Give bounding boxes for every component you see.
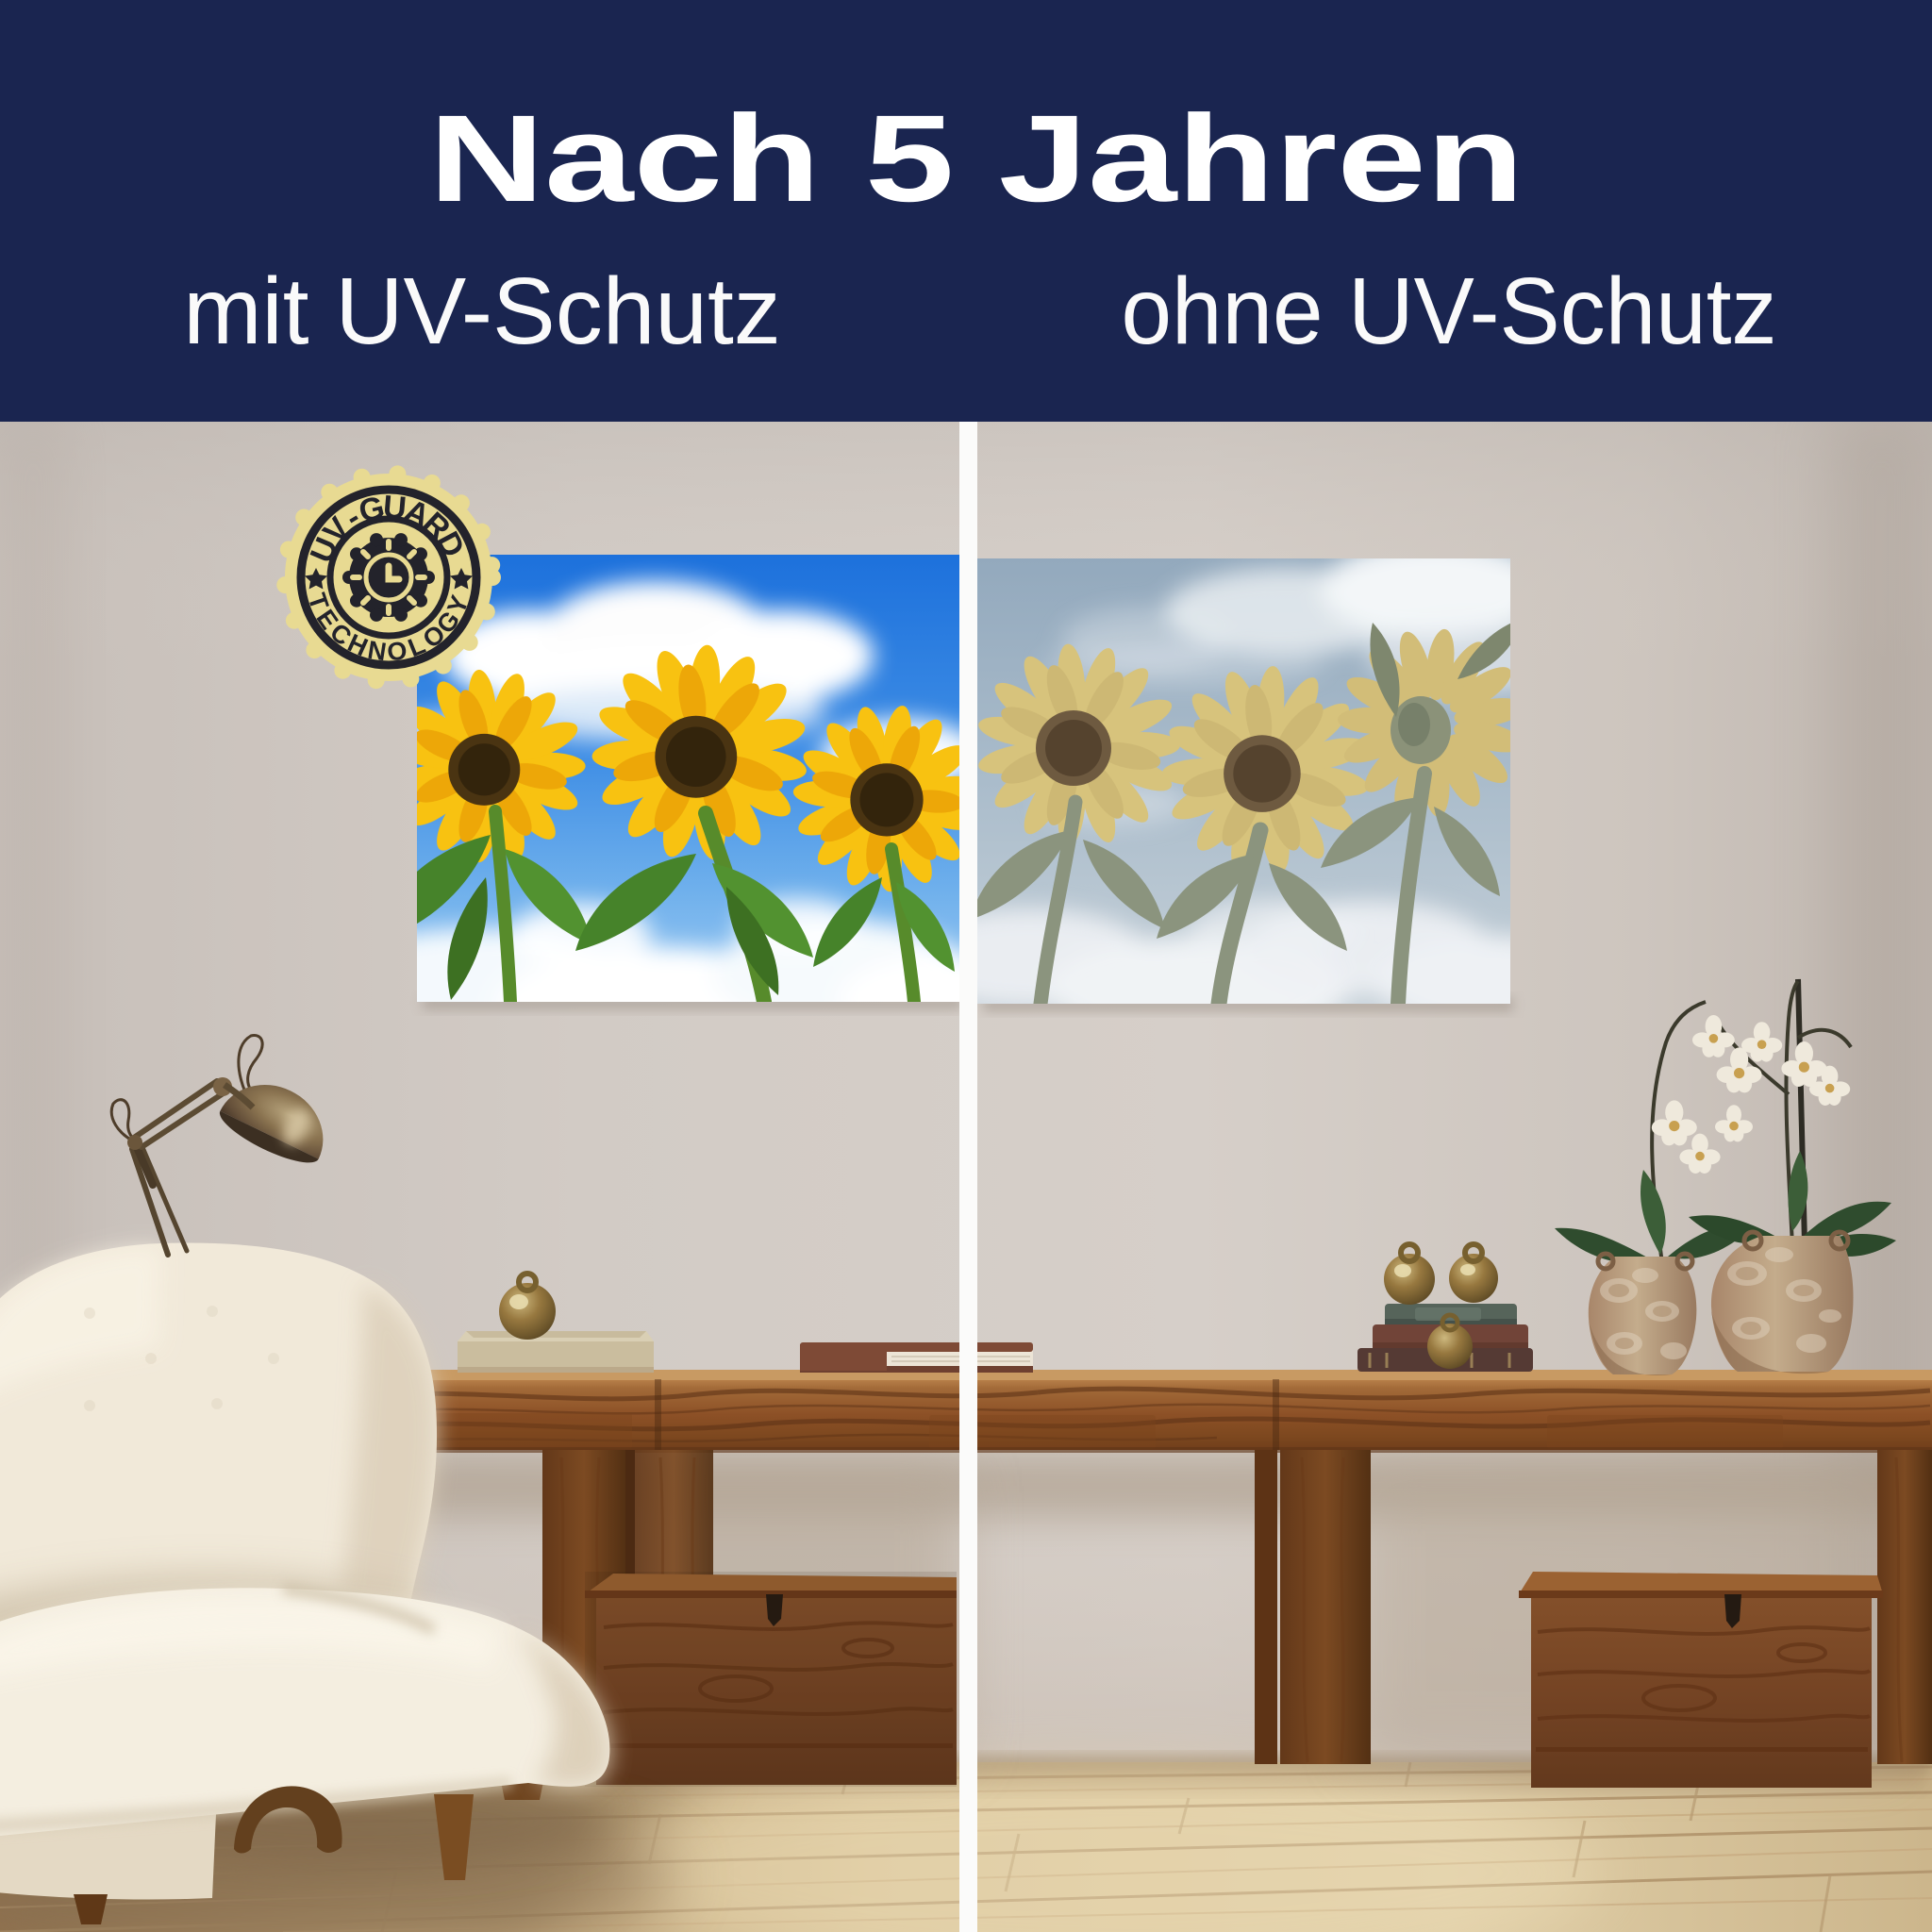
svg-text:ohne UV-Schutz: ohne UV-Schutz [1122,258,1777,364]
svg-text:Nach 5 Jahren: Nach 5 Jahren [429,89,1524,227]
svg-text:mit UV-Schutz: mit UV-Schutz [183,258,781,364]
